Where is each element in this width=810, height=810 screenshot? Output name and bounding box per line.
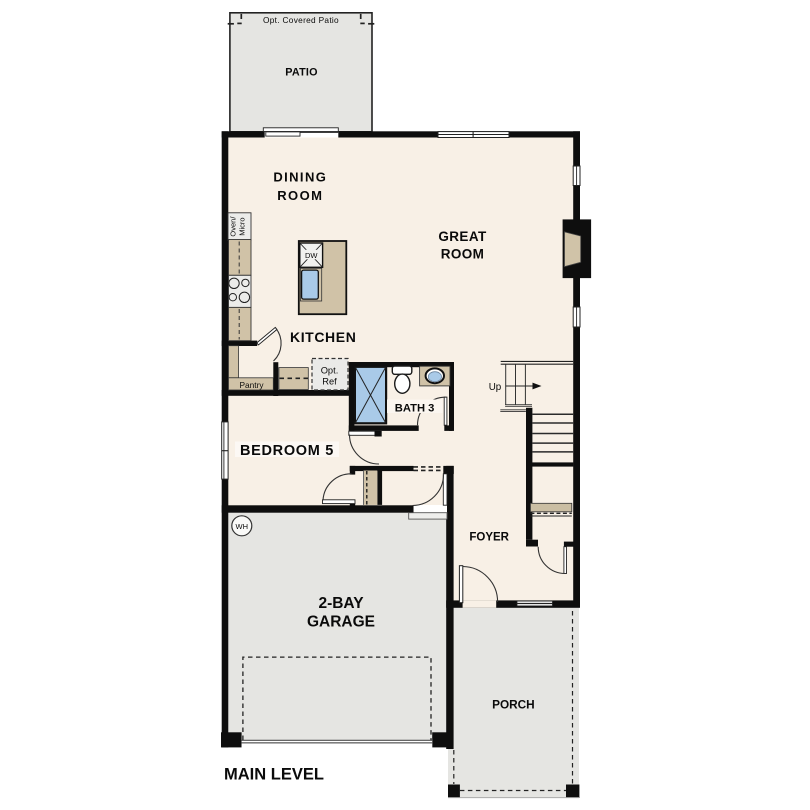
svg-text:BATH 3: BATH 3 [395, 402, 435, 414]
svg-text:ROOM: ROOM [441, 247, 485, 262]
svg-text:Micro: Micro [237, 217, 246, 235]
svg-text:PATIO: PATIO [285, 67, 317, 79]
svg-text:DW: DW [305, 251, 318, 260]
svg-text:Pantry: Pantry [240, 380, 265, 390]
svg-text:Opt. Covered Patio: Opt. Covered Patio [263, 15, 339, 25]
svg-text:BEDROOM 5: BEDROOM 5 [240, 443, 334, 459]
svg-text:2-BAY: 2-BAY [318, 595, 364, 612]
svg-text:Oven/: Oven/ [229, 216, 238, 237]
svg-text:ROOM: ROOM [277, 188, 323, 203]
svg-text:Up: Up [489, 382, 502, 393]
svg-text:GREAT: GREAT [438, 229, 487, 244]
svg-text:Ref: Ref [322, 376, 337, 386]
svg-text:DINING: DINING [273, 170, 327, 185]
svg-text:FOYER: FOYER [469, 531, 509, 543]
svg-text:Opt.: Opt. [321, 365, 339, 375]
svg-text:KITCHEN: KITCHEN [290, 329, 356, 345]
svg-text:WH: WH [236, 522, 249, 531]
svg-text:PORCH: PORCH [492, 698, 535, 712]
svg-text:GARAGE: GARAGE [307, 613, 375, 630]
svg-text:MAIN LEVEL: MAIN LEVEL [224, 766, 324, 784]
